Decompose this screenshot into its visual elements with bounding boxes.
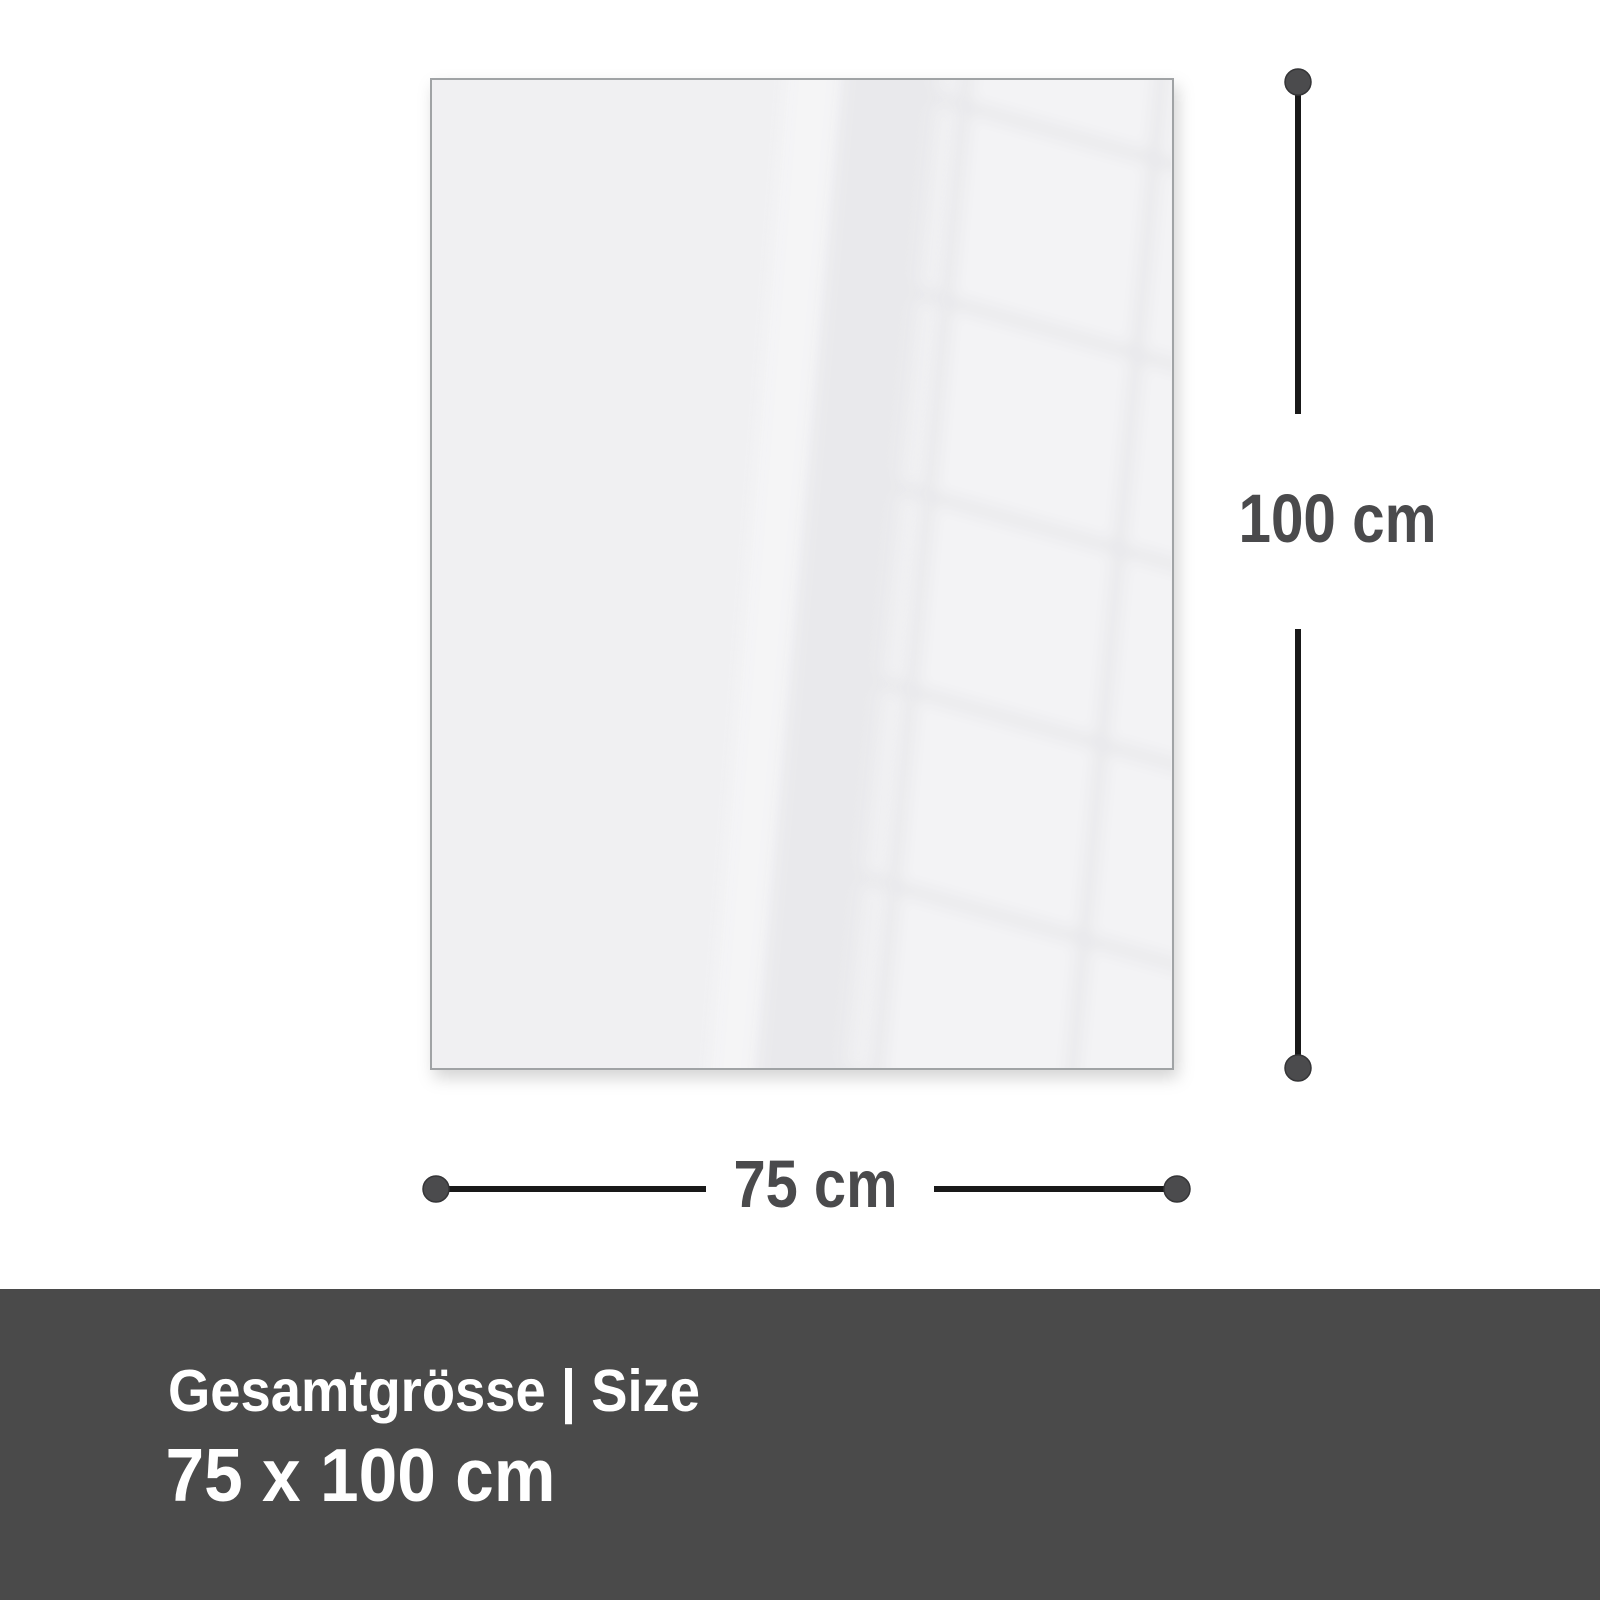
- svg-text:75 cm: 75 cm: [734, 1147, 898, 1222]
- svg-text:75 x 100 cm: 75 x 100 cm: [166, 1433, 556, 1517]
- svg-text:Gesamtgrösse | Size: Gesamtgrösse | Size: [168, 1358, 700, 1425]
- svg-text:100 cm: 100 cm: [1239, 480, 1437, 557]
